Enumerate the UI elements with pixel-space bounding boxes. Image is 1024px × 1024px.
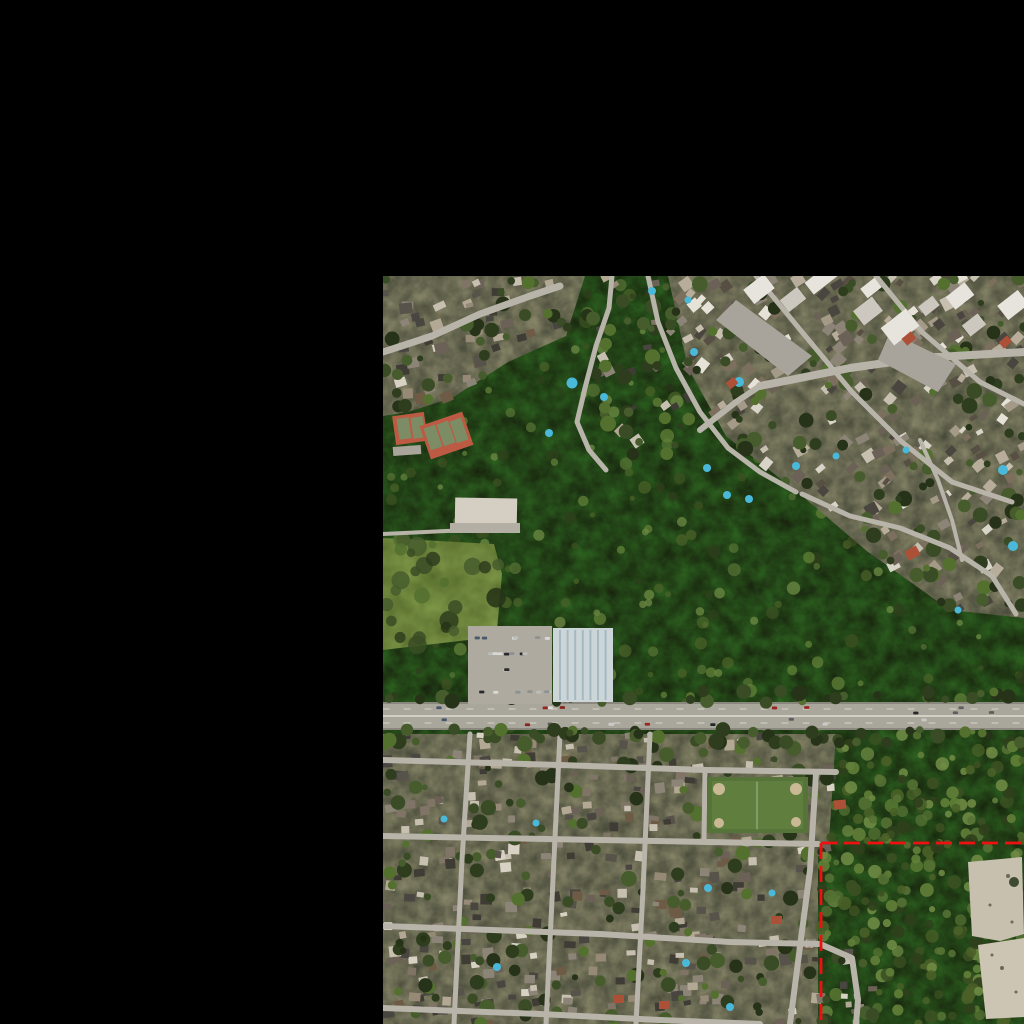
terrain-layers [378,264,1024,1024]
gravel-clearing-south [978,938,1024,1019]
aerial-orthophoto [0,0,1024,1024]
street-field-west [704,772,705,840]
gravel-dark-patch [1009,877,1019,887]
gravel-clearing-north [968,857,1024,941]
clubhouse-yard [450,523,520,533]
screenshot: { "meta": { "type": "aerial-orthophoto",… [0,0,1024,1024]
clubhouse [455,497,517,524]
screenshot-canvas [0,0,1024,1024]
retail-roof-ribs [560,630,606,700]
